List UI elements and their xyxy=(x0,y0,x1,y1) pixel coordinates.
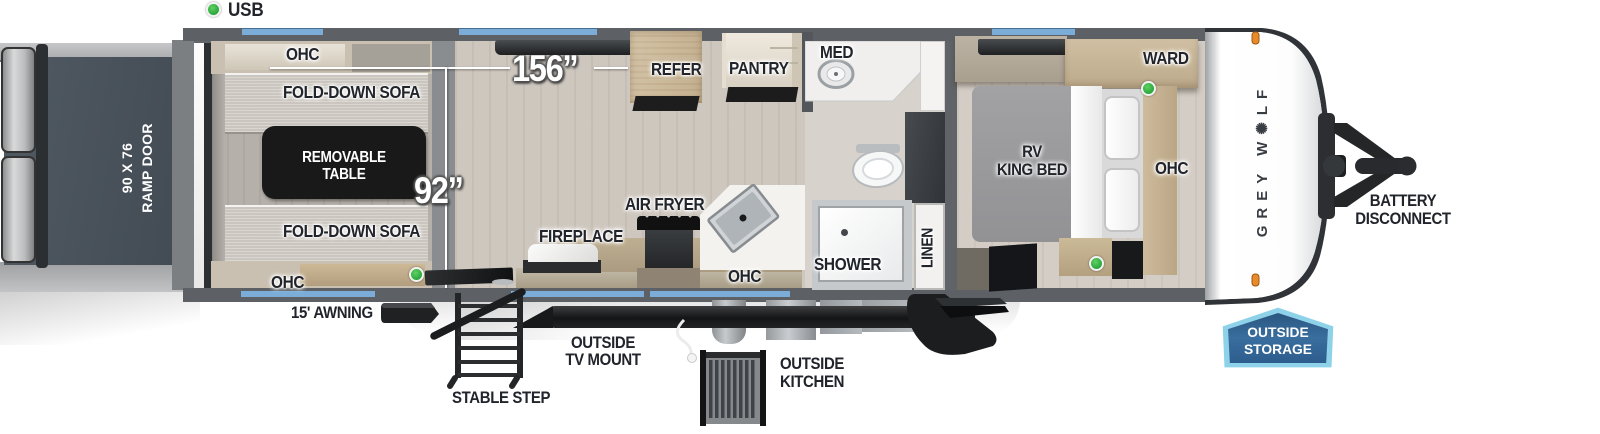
svg-text:OUTSIDE: OUTSIDE xyxy=(1247,324,1308,340)
svg-text:STORAGE: STORAGE xyxy=(1244,341,1312,357)
